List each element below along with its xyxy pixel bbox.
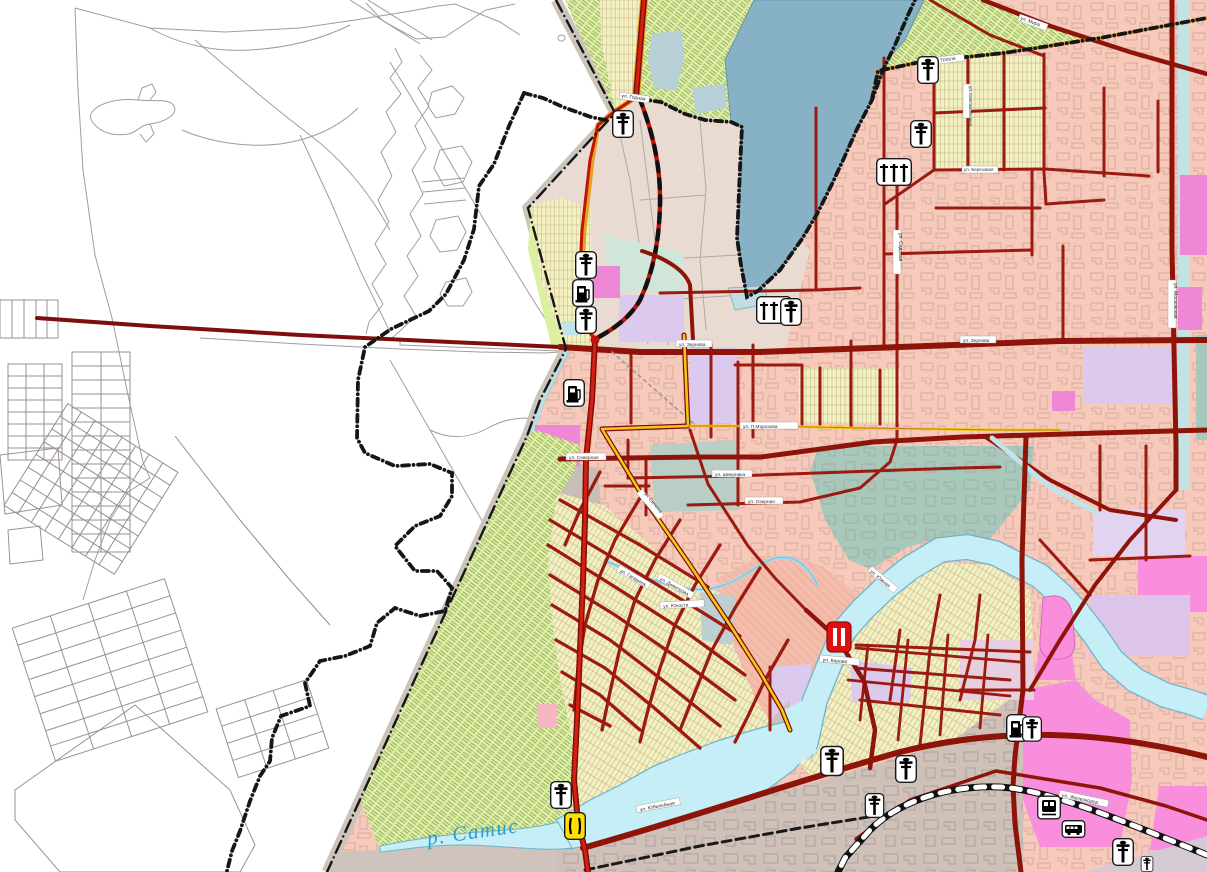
svg-text:ул. Зернова: ул. Зернова (679, 342, 706, 348)
svg-text:ул. Северная: ул. Северная (569, 455, 599, 461)
svg-text:ул. Московская: ул. Московская (1172, 283, 1178, 319)
svg-text:ул. Шверника: ул. Шверника (715, 472, 746, 478)
svg-text:ул. Комсомольская: ул. Комсомольская (968, 86, 973, 127)
svg-text:ул. П.Морозова: ул. П.Морозова (743, 424, 778, 430)
svg-text:ул. Садовая: ул. Садовая (897, 233, 903, 262)
svg-text:ул. Березовая: ул. Березовая (964, 167, 994, 172)
svg-text:ул. Зернова: ул. Зернова (963, 338, 990, 344)
svg-text:ул. Озерная: ул. Озерная (748, 499, 775, 505)
